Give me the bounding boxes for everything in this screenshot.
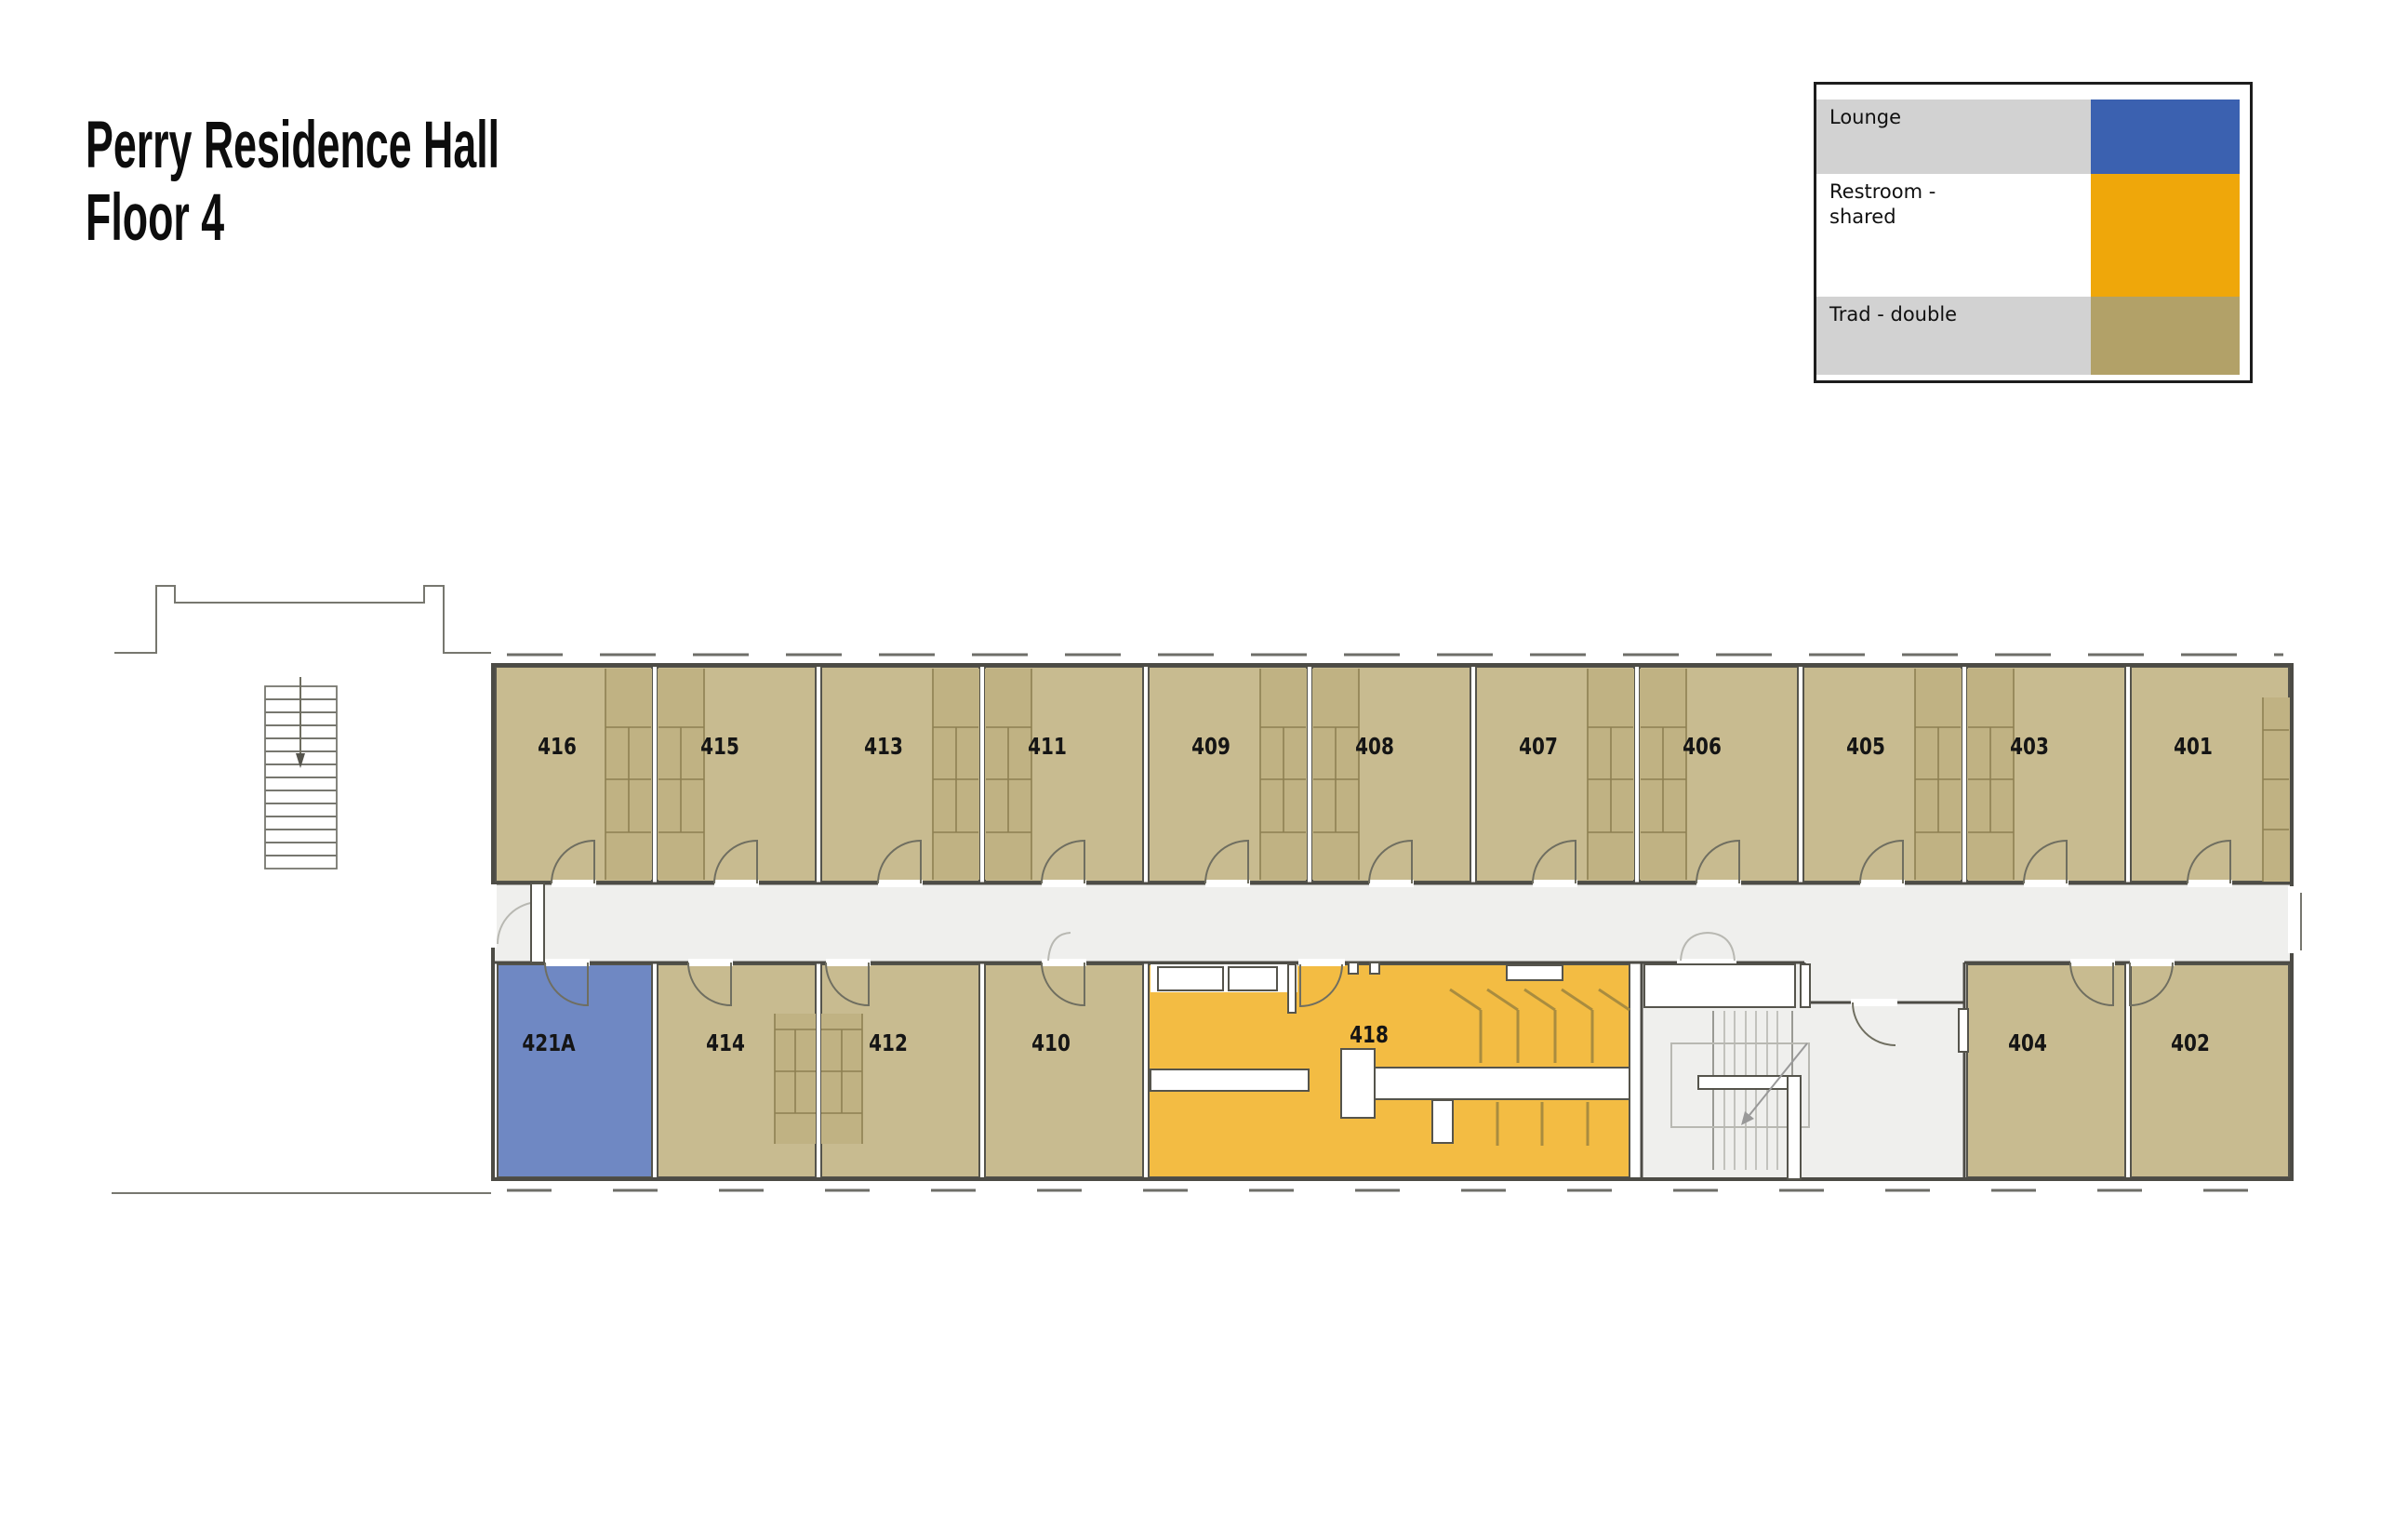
stair-landing-rail [1698, 1076, 1801, 1089]
room-label-414[interactable]: 414 [673, 1028, 778, 1059]
sink-counter-2 [1229, 967, 1277, 990]
room-421A-area[interactable] [498, 964, 652, 1177]
room-label-413[interactable]: 413 [831, 731, 936, 763]
room-404-area[interactable] [1967, 964, 2125, 1177]
room-label-409[interactable]: 409 [1159, 731, 1263, 763]
room-label-402[interactable]: 402 [2138, 1028, 2242, 1059]
sink-counter-1 [1158, 967, 1223, 990]
room-label-415[interactable]: 415 [668, 731, 772, 763]
top-rooms [496, 667, 2289, 882]
elevator [1644, 964, 1795, 1007]
room-label-410[interactable]: 410 [999, 1028, 1103, 1059]
room-402-area[interactable] [2131, 964, 2289, 1177]
room-label-418[interactable]: 418 [1317, 1019, 1421, 1051]
room-410-area[interactable] [985, 964, 1143, 1177]
west-corridor-door [531, 883, 544, 962]
room-label-416[interactable]: 416 [505, 731, 609, 763]
restroom-partition-left [1151, 1069, 1309, 1091]
room-label-411[interactable]: 411 [995, 731, 1099, 763]
room-label-408[interactable]: 408 [1323, 731, 1427, 763]
room-label-405[interactable]: 405 [1814, 731, 1918, 763]
room-label-404[interactable]: 404 [1975, 1028, 2080, 1059]
parapet-outline [114, 586, 491, 653]
restroom-fixture [1507, 965, 1563, 980]
shower-partition [1341, 1049, 1375, 1118]
stair-lobby-door-leaf [1959, 1009, 1968, 1052]
room-label-403[interactable]: 403 [1977, 731, 2082, 763]
room-label-407[interactable]: 407 [1486, 731, 1590, 763]
room-label-406[interactable]: 406 [1650, 731, 1754, 763]
room-label-401[interactable]: 401 [2141, 731, 2245, 763]
room-label-421A[interactable]: 421A [497, 1028, 601, 1059]
floorplan-page: Perry Residence Hall Floor 4 Lounge Rest… [0, 0, 2381, 1540]
restroom-partition-band [1375, 1068, 1629, 1099]
floorplan-svg [0, 0, 2381, 1540]
room-label-412[interactable]: 412 [836, 1028, 940, 1059]
